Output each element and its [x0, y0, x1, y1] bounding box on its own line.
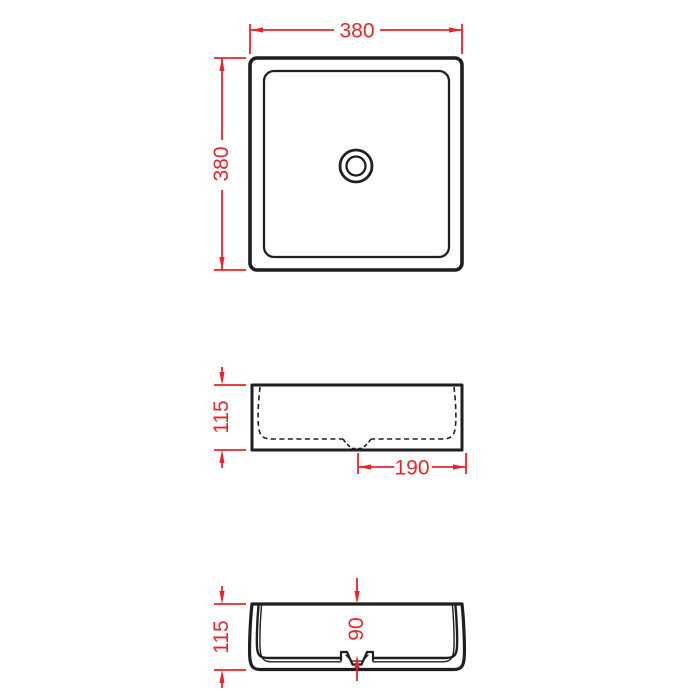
top-view	[250, 58, 462, 270]
dim-front-height-label: 115	[210, 400, 233, 433]
dim-top-width-label: 380	[339, 20, 374, 43]
dim-front-height: 115	[210, 367, 246, 468]
front-view-outline	[252, 385, 462, 450]
arrow-up-icon	[219, 670, 224, 683]
arrow-left-icon	[250, 27, 263, 32]
arrow-down-icon	[354, 591, 359, 604]
dim-top-width: 380	[250, 20, 462, 55]
arrow-down-icon	[219, 257, 224, 270]
arrow-down-icon	[219, 372, 224, 385]
arrow-right-icon	[449, 27, 462, 32]
dim-drain-offset-label: 190	[394, 457, 429, 480]
dim-section-height: 115	[210, 586, 246, 688]
dim-inner-depth-label: 90	[345, 617, 368, 640]
arrow-down-icon	[219, 591, 224, 604]
front-view	[252, 385, 462, 450]
drawing-sheet: 380 380 115 190	[0, 0, 700, 700]
arrow-up-icon	[219, 58, 224, 71]
dim-top-height-label: 380	[210, 146, 233, 181]
arrow-right-icon	[453, 464, 466, 469]
dim-top-height: 380	[210, 58, 246, 270]
top-view-outer-rim	[250, 58, 462, 270]
arrow-left-icon	[358, 464, 371, 469]
dim-section-height-label: 115	[210, 620, 233, 653]
technical-drawing-canvas: 380 380 115 190	[0, 0, 700, 700]
dim-drain-offset: 190	[358, 453, 466, 480]
arrow-up-icon	[219, 450, 224, 463]
